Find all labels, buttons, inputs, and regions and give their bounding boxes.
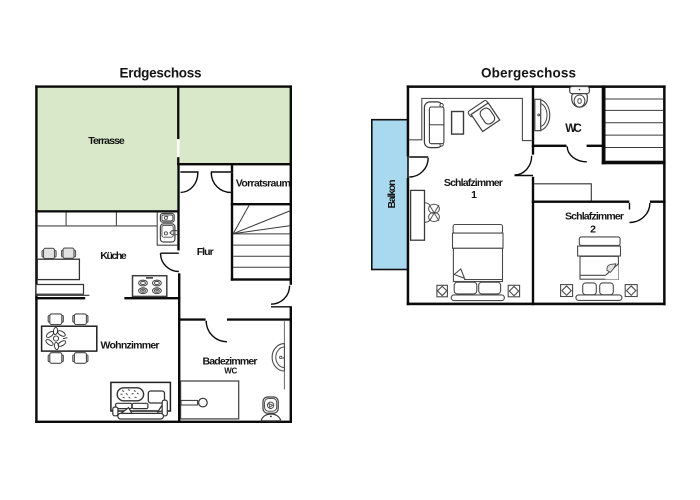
svg-text:Flur: Flur bbox=[197, 246, 214, 258]
svg-text:1: 1 bbox=[471, 189, 477, 201]
svg-text:Balkon: Balkon bbox=[386, 180, 398, 209]
svg-text:Erdgeschoss: Erdgeschoss bbox=[120, 66, 202, 81]
svg-text:WC: WC bbox=[224, 366, 237, 375]
svg-text:Küche: Küche bbox=[100, 250, 127, 262]
svg-text:Terrasse: Terrasse bbox=[88, 135, 125, 147]
svg-text:Wohnzimmer: Wohnzimmer bbox=[101, 340, 160, 352]
svg-text:Obergeschoss: Obergeschoss bbox=[481, 66, 576, 81]
svg-text:Schlafzimmer: Schlafzimmer bbox=[444, 177, 503, 189]
svg-text:2: 2 bbox=[590, 224, 596, 236]
svg-text:WC: WC bbox=[565, 123, 582, 135]
svg-text:Schlafzimmer: Schlafzimmer bbox=[565, 211, 624, 223]
svg-text:Vorratsraum: Vorratsraum bbox=[236, 177, 291, 189]
